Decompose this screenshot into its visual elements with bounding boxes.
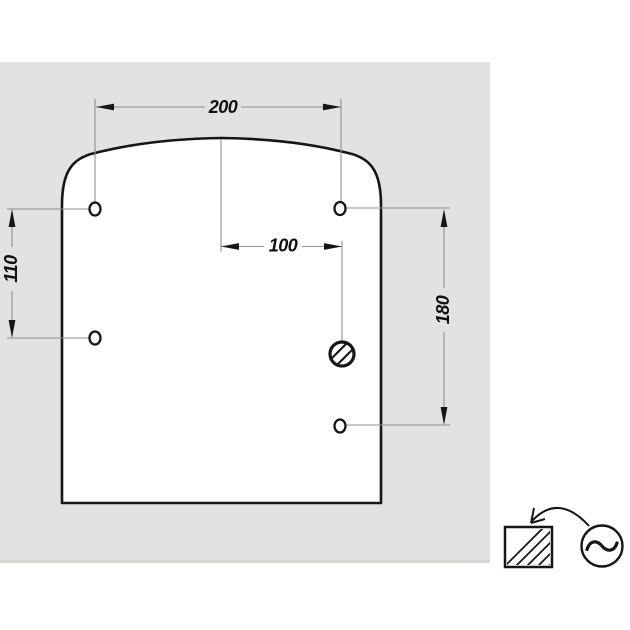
dimension-200-label: 200 [208,97,238,117]
mirror-panel-drawing: 200 100 110 180 [0,0,630,630]
mounting-hole-bottom-right [335,420,346,433]
canvas-bottom-edge [0,560,490,563]
dimension-110-label: 110 [1,255,21,283]
dimension-180-label: 180 [433,295,453,324]
curved-arrow-icon [531,508,589,526]
dimension-100-label: 100 [269,236,298,256]
mounting-hole-top-right [335,202,346,215]
ac-source-icon [582,526,623,567]
mounting-hole-top-left [90,203,101,216]
mounting-hole-bottom-left [90,332,101,345]
socket-circle [330,342,354,366]
arrow-arc [531,508,589,526]
technical-drawing-page: 200 100 110 180 [0,0,630,630]
hatched-square-icon [496,520,595,575]
